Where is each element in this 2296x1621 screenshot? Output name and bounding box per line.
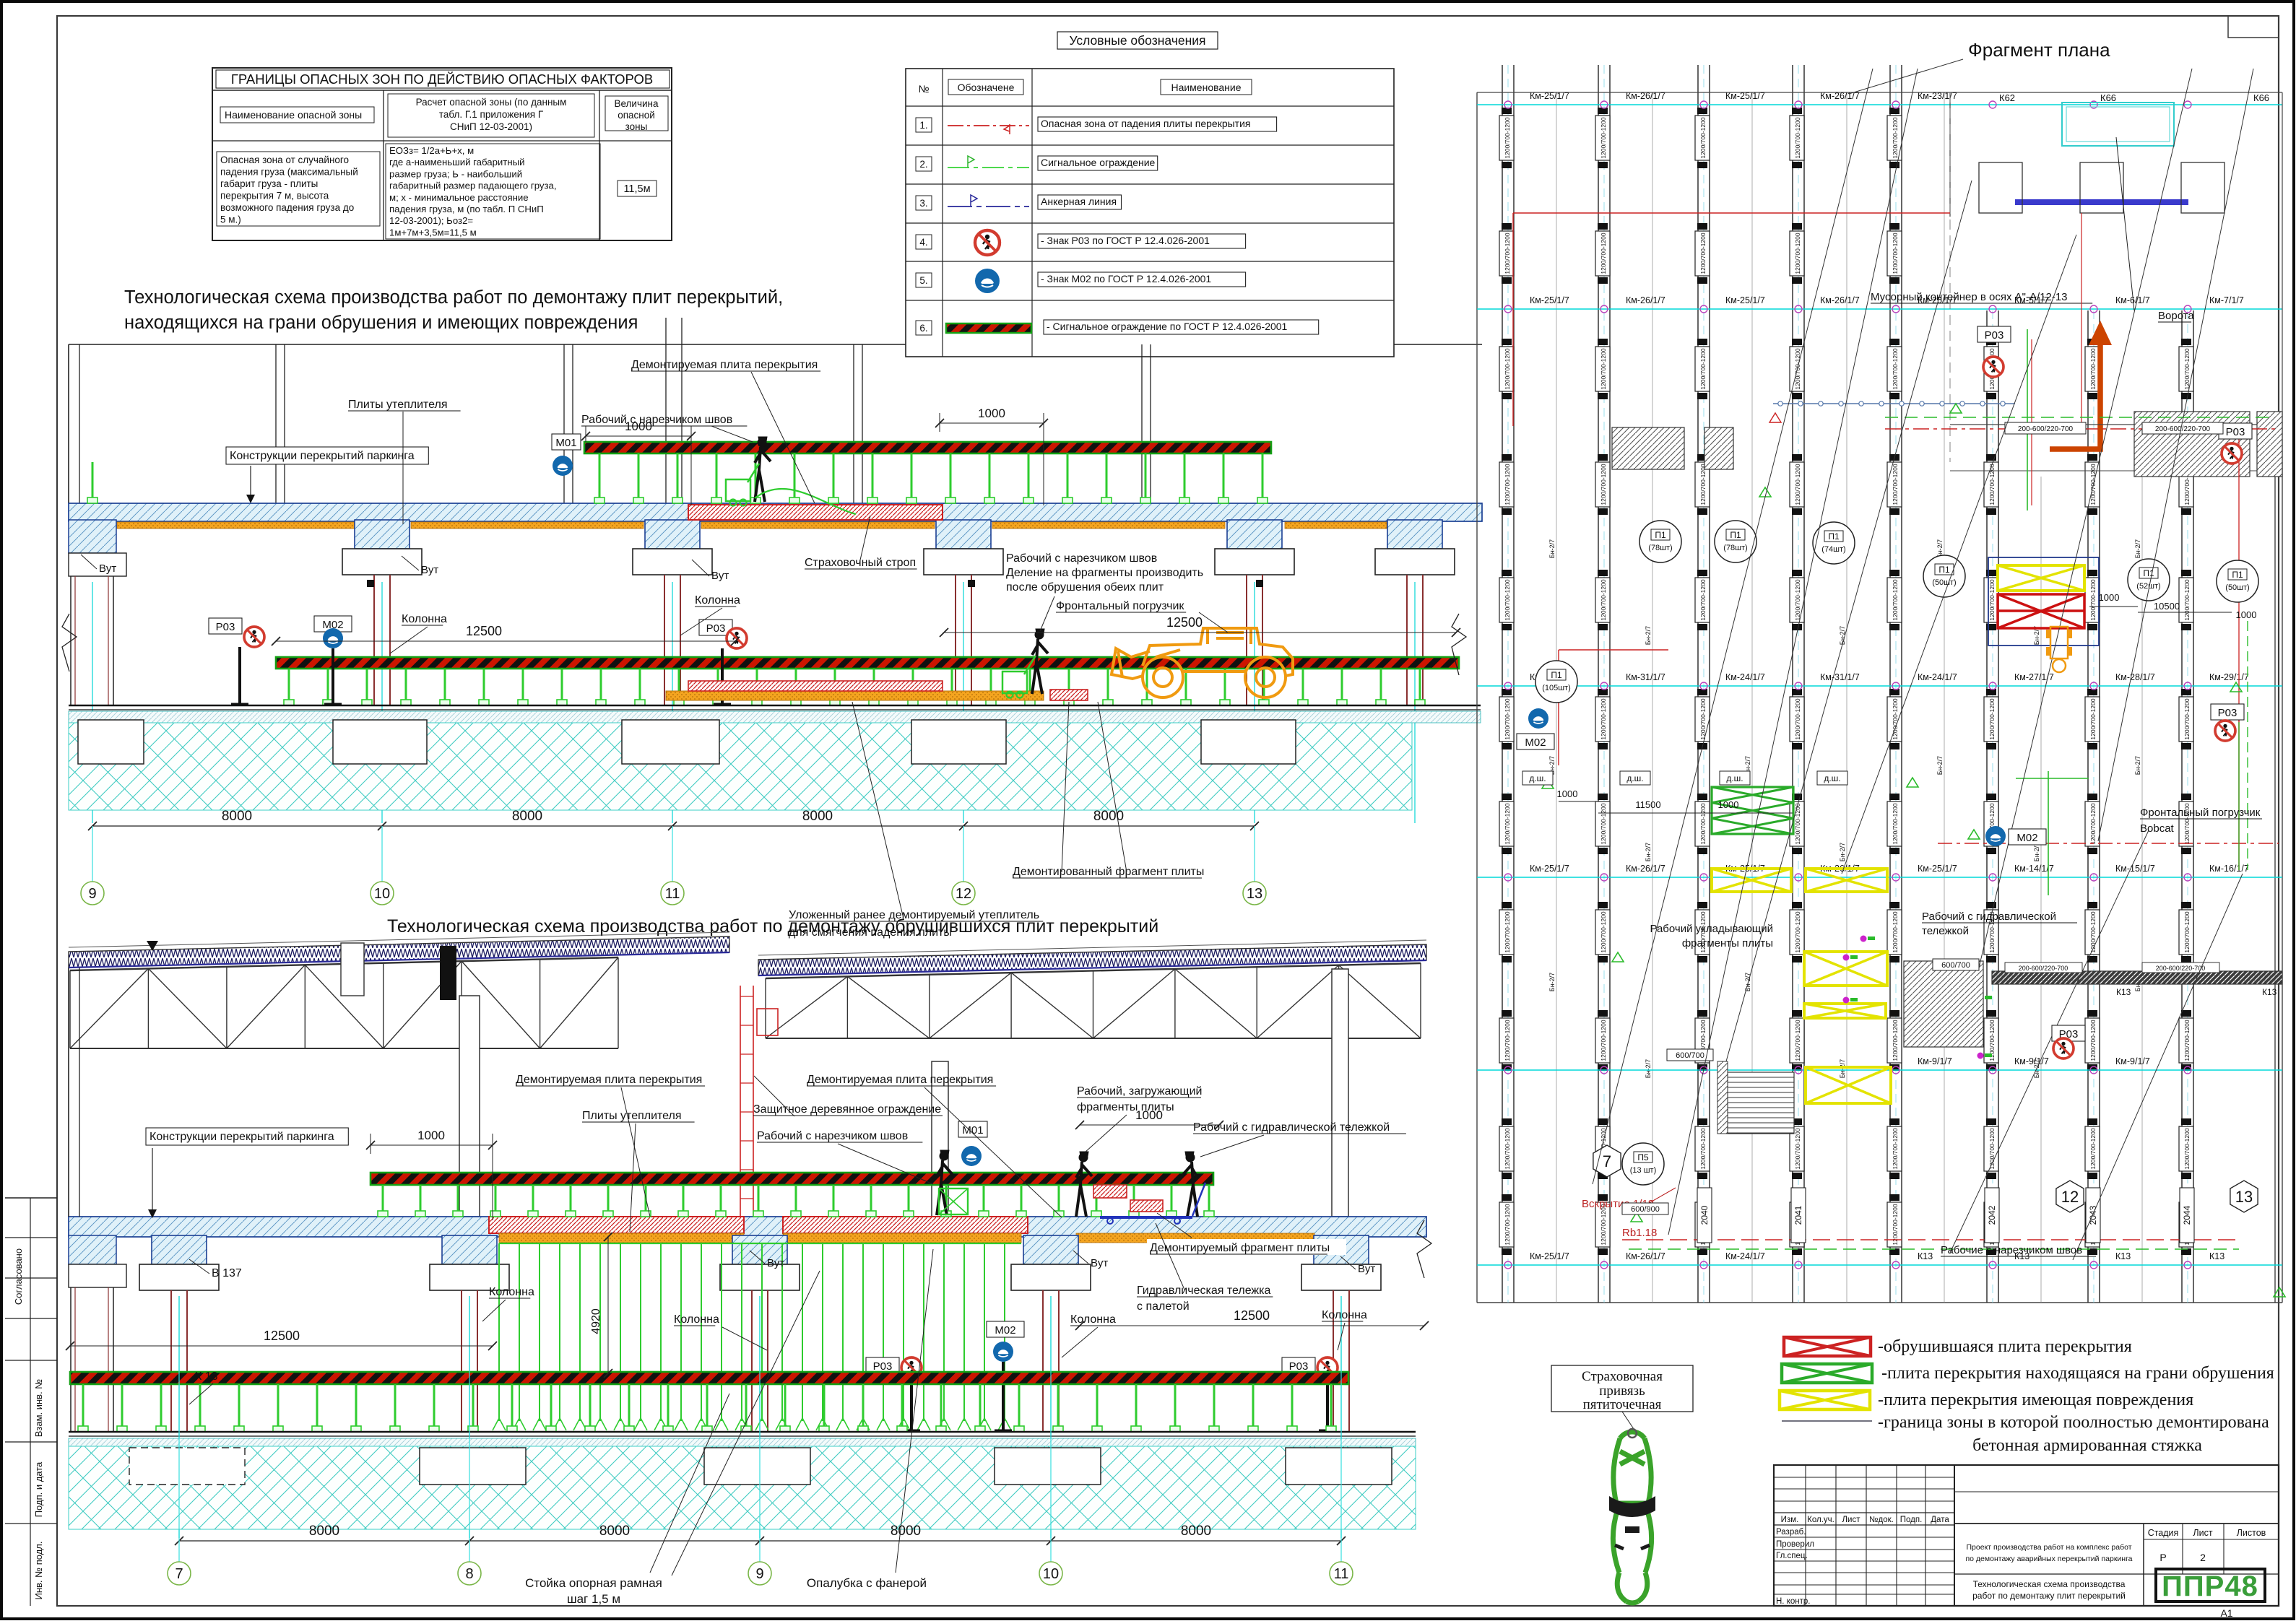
svg-text:6.: 6. xyxy=(919,323,927,334)
svg-text:12500: 12500 xyxy=(1234,1308,1270,1323)
svg-text:1200/700-1200: 1200/700-1200 xyxy=(1600,1020,1607,1061)
svg-text:Вут: Вут xyxy=(711,570,729,582)
svg-text:Наименование опасной зоны: Наименование опасной зоны xyxy=(225,109,362,121)
svg-text:8000: 8000 xyxy=(599,1524,630,1539)
svg-text:7: 7 xyxy=(1603,1152,1611,1170)
svg-text:8000: 8000 xyxy=(802,809,833,824)
svg-text:Вут: Вут xyxy=(767,1257,784,1269)
svg-text:1000: 1000 xyxy=(1557,788,1578,799)
svg-text:К13: К13 xyxy=(2209,1251,2224,1261)
svg-text:Рабочий укладывающий: Рабочий укладывающий xyxy=(1650,923,1773,935)
svg-text:Р03: Р03 xyxy=(2218,707,2237,719)
svg-text:Рабочий с нарезчиком швов: Рабочий с нарезчиком швов xyxy=(757,1130,908,1142)
svg-text:2.: 2. xyxy=(919,159,927,170)
svg-text:Км-25/1/7: Км-25/1/7 xyxy=(1530,295,1569,305)
svg-text:П5: П5 xyxy=(1637,1152,1649,1162)
svg-text:200-600/220-700: 200-600/220-700 xyxy=(2156,965,2206,972)
svg-text:5.: 5. xyxy=(919,275,927,286)
svg-text:1200/700-1200: 1200/700-1200 xyxy=(1794,911,1801,952)
svg-text:1000: 1000 xyxy=(2236,609,2257,620)
svg-text:13: 13 xyxy=(2235,1188,2253,1206)
svg-text:1200/700-1200: 1200/700-1200 xyxy=(1600,579,1607,620)
svg-text:1200/700-1200: 1200/700-1200 xyxy=(1600,464,1607,505)
svg-text:Наименование: Наименование xyxy=(1171,82,1241,93)
svg-text:шаг 1,5 м: шаг 1,5 м xyxy=(567,1592,620,1606)
svg-text:8: 8 xyxy=(465,1566,473,1582)
svg-text:Км-26/1/7: Км-26/1/7 xyxy=(1626,864,1665,874)
svg-text:1200/700-1200: 1200/700-1200 xyxy=(1892,117,1899,158)
svg-text:П1: П1 xyxy=(1938,565,1950,575)
svg-text:Анкерная линия: Анкерная линия xyxy=(1041,196,1117,207)
svg-text:1200/700-1200: 1200/700-1200 xyxy=(2089,698,2097,739)
svg-text:1200/700-1200: 1200/700-1200 xyxy=(1600,232,1607,274)
svg-text:Листов: Листов xyxy=(2237,1528,2266,1538)
svg-text:(74шт): (74шт) xyxy=(1821,545,1845,554)
svg-text:возможного падения груза до: возможного падения груза до xyxy=(220,202,354,213)
svg-text:1200/700-1200: 1200/700-1200 xyxy=(1988,698,1996,739)
svg-text:-плита перекрытия находящаяся: -плита перекрытия находящаяся на грани о… xyxy=(1881,1364,2274,1383)
svg-text:Км-24/1/7: Км-24/1/7 xyxy=(1725,672,1765,682)
svg-text:Дата: Дата xyxy=(1931,1516,1949,1524)
svg-text:8000: 8000 xyxy=(1093,809,1124,824)
svg-text:Км-9/1/7: Км-9/1/7 xyxy=(2014,1056,2049,1066)
svg-text:1200/700-1200: 1200/700-1200 xyxy=(1988,464,1996,505)
svg-text:Колонна: Колонна xyxy=(402,613,447,625)
svg-text:Демонтируемая плита перекрыт: Демонтируемая плита перекрытия xyxy=(807,1074,993,1086)
svg-text:Гидравлическая тележка: Гидравлическая тележка xyxy=(1137,1285,1270,1297)
svg-text:Фрагмент плана: Фрагмент плана xyxy=(1968,39,2110,61)
svg-text:11500: 11500 xyxy=(1635,799,1660,810)
svg-text:К62: К62 xyxy=(1999,92,2015,103)
svg-text:Км-29/1/7: Км-29/1/7 xyxy=(2209,672,2249,682)
svg-text:1200/700-1200: 1200/700-1200 xyxy=(1600,117,1607,158)
svg-text:м; х - минимальное расстоя: м; х - минимальное расстояние xyxy=(389,192,529,203)
svg-text:200-600/220-700: 200-600/220-700 xyxy=(2155,425,2211,433)
svg-text:Км-16/1/7: Км-16/1/7 xyxy=(2209,864,2249,874)
svg-text:1200/700-1200: 1200/700-1200 xyxy=(2183,911,2191,952)
svg-text:1000: 1000 xyxy=(2099,592,2120,603)
svg-text:опасной: опасной xyxy=(618,110,655,121)
svg-text:-граница зоны в которой поолно: -граница зоны в которой поолностью демон… xyxy=(1878,1413,2269,1432)
svg-text:Конструкции перекрытий парки: Конструкции перекрытий паркинга xyxy=(230,450,415,462)
svg-text:Рабочий с нарезчиком швов: Рабочий с нарезчиком швов xyxy=(581,414,732,426)
svg-text:Км-24/1/7: Км-24/1/7 xyxy=(1725,1251,1765,1261)
svg-text:1200/700-1200: 1200/700-1200 xyxy=(1699,579,1707,620)
svg-text:1200/700-1200: 1200/700-1200 xyxy=(1892,1128,1899,1169)
svg-text:1200/700-1200: 1200/700-1200 xyxy=(2089,1128,2097,1169)
svg-text:Колонна: Колонна xyxy=(695,594,740,607)
svg-text:по демонтажу аварийных перекры: по демонтажу аварийных перекрытий паркин… xyxy=(1965,1555,2132,1563)
svg-text:Км-15/1/7: Км-15/1/7 xyxy=(2115,864,2155,874)
svg-text:№: № xyxy=(918,83,929,95)
svg-text:М02: М02 xyxy=(1525,736,1546,749)
svg-text:Бн-2/7: Бн-2/7 xyxy=(1645,1059,1652,1078)
svg-text:(50шт): (50шт) xyxy=(2225,583,2249,592)
svg-text:Опалубка с фанерой: Опалубка с фанерой xyxy=(807,1576,927,1590)
svg-text:(13 шт): (13 шт) xyxy=(1630,1166,1656,1175)
svg-text:1200/700-1200: 1200/700-1200 xyxy=(1699,1128,1707,1169)
svg-text:Конструкции перекрытий парки: Конструкции перекрытий паркинга xyxy=(150,1131,334,1143)
svg-text:находящихся на грани обруше: находящихся на грани обрушения и имеющих… xyxy=(124,313,638,333)
svg-text:Км-7/1/7: Км-7/1/7 xyxy=(2209,295,2244,305)
svg-text:д.ш.: д.ш. xyxy=(1626,773,1643,783)
svg-text:после обрушения обеих плит: после обрушения обеих плит xyxy=(1006,581,1164,594)
svg-text:Кол.уч.: Кол.уч. xyxy=(1807,1516,1834,1524)
svg-text:1200/700-1200: 1200/700-1200 xyxy=(1504,117,1511,158)
svg-text:ГРАНИЦЫ ОПАСНЫХ ЗОН ПО ДЕЙ: ГРАНИЦЫ ОПАСНЫХ ЗОН ПО ДЕЙСТВИЮ ОПАСНЫХ … xyxy=(231,71,653,87)
svg-text:1200/700-1200: 1200/700-1200 xyxy=(1504,348,1511,389)
svg-text:1200/700-1200: 1200/700-1200 xyxy=(2089,348,2097,389)
svg-text:Плиты утеплителя: Плиты утеплителя xyxy=(348,399,448,411)
svg-text:К66: К66 xyxy=(2100,92,2116,103)
svg-text:1200/700-1200: 1200/700-1200 xyxy=(2183,1128,2191,1169)
svg-text:Сигнальное ограждение: Сигнальное ограждение xyxy=(1041,157,1156,168)
svg-text:Км-9/1/7: Км-9/1/7 xyxy=(1918,1056,1952,1066)
svg-text:габаритный размер падающего: габаритный размер падающего груза, xyxy=(389,181,557,191)
svg-text:200-600/220-700: 200-600/220-700 xyxy=(2018,425,2074,433)
svg-text:Бн-2/7: Бн-2/7 xyxy=(2134,756,2141,775)
svg-text:1200/700-1200: 1200/700-1200 xyxy=(1699,803,1707,844)
svg-text:Колонна: Колонна xyxy=(1322,1309,1367,1321)
svg-text:1200/700-1200: 1200/700-1200 xyxy=(1504,698,1511,739)
svg-text:Bobcat: Bobcat xyxy=(2140,822,2175,835)
svg-text:1200/700-1200: 1200/700-1200 xyxy=(1504,1128,1511,1169)
svg-text:для смягчения падения плиты: для смягчения падения плиты xyxy=(789,926,952,939)
svg-text:1200/700-1200: 1200/700-1200 xyxy=(1600,698,1607,739)
svg-text:1200/700-1200: 1200/700-1200 xyxy=(1892,1204,1899,1245)
svg-text:Стойка опорная рамная: Стойка опорная рамная xyxy=(525,1576,662,1590)
svg-text:Подп.: Подп. xyxy=(1900,1516,1923,1524)
svg-text:Км-26/1/7: Км-26/1/7 xyxy=(1626,1251,1665,1261)
svg-text:1м+7м+3,5м=11,5 м: 1м+7м+3,5м=11,5 м xyxy=(389,227,477,238)
svg-text:К 13: К 13 xyxy=(195,1370,218,1383)
svg-text:Мусорный контейнер в осях: Мусорный контейнер в осях А"-А/12-13 xyxy=(1871,291,2068,303)
svg-text:д.ш.: д.ш. xyxy=(1529,773,1546,783)
svg-text:1200/700-1200: 1200/700-1200 xyxy=(2183,348,2191,389)
svg-text:Лист: Лист xyxy=(1842,1516,1861,1524)
svg-text:1200/700-1200: 1200/700-1200 xyxy=(1892,1020,1899,1061)
svg-text:Изм.: Изм. xyxy=(1781,1516,1799,1524)
svg-text:600/700: 600/700 xyxy=(1941,961,1970,970)
svg-text:Бн-2/7: Бн-2/7 xyxy=(2134,539,2141,558)
svg-text:1200/700-1200: 1200/700-1200 xyxy=(1794,698,1801,739)
svg-text:Колонна: Колонна xyxy=(674,1313,719,1326)
svg-text:4920: 4920 xyxy=(590,1308,602,1334)
svg-text:1000: 1000 xyxy=(417,1129,445,1142)
svg-text:№док.: №док. xyxy=(1869,1516,1894,1524)
svg-text:Технологическая схема произв: Технологическая схема производства работ… xyxy=(124,287,783,308)
svg-text:Км-26/1/7: Км-26/1/7 xyxy=(1626,295,1665,305)
svg-text:Проект производства работ на к: Проект производства работ на комплекс ра… xyxy=(1966,1543,2131,1552)
svg-text:Км-9/1/7: Км-9/1/7 xyxy=(2115,1056,2150,1066)
svg-text:Вут: Вут xyxy=(1358,1263,1375,1275)
svg-text:Рабочий, загружающий: Рабочий, загружающий xyxy=(1077,1085,1202,1098)
svg-text:8000: 8000 xyxy=(512,809,542,824)
svg-text:1200/700-1200: 1200/700-1200 xyxy=(2183,698,2191,739)
svg-text:Р03: Р03 xyxy=(216,621,235,633)
svg-text:Бн-2/7: Бн-2/7 xyxy=(1645,843,1652,861)
svg-text:1000: 1000 xyxy=(1718,799,1739,810)
svg-text:Км-25/1/7: Км-25/1/7 xyxy=(1725,295,1765,305)
svg-text:Демонтируемый фрагмент плиты: Демонтируемый фрагмент плиты xyxy=(1150,1242,1330,1254)
svg-text:Демонтируемая плита перекрыт: Демонтируемая плита перекрытия xyxy=(516,1074,702,1086)
svg-text:ЕОЗз= 1/2а+Ь+х, м: ЕОЗз= 1/2а+Ь+х, м xyxy=(389,145,474,156)
svg-text:7: 7 xyxy=(175,1566,183,1582)
svg-text:фрагменты плиты: фрагменты плиты xyxy=(1682,937,1773,949)
svg-text:П1: П1 xyxy=(1551,670,1562,680)
svg-text:А1: А1 xyxy=(2220,1607,2232,1619)
svg-text:зоны: зоны xyxy=(625,121,648,132)
svg-text:К13: К13 xyxy=(2116,987,2131,997)
svg-text:Плиты утеплителя: Плиты утеплителя xyxy=(582,1110,682,1122)
svg-text:М01: М01 xyxy=(555,437,576,449)
svg-text:Км-25/1/7: Км-25/1/7 xyxy=(1530,1251,1569,1261)
svg-text:фрагменты плиты: фрагменты плиты xyxy=(1077,1101,1174,1113)
svg-text:Р: Р xyxy=(2159,1552,2166,1563)
svg-text:Обозначене: Обозначене xyxy=(958,82,1015,93)
svg-text:3.: 3. xyxy=(919,198,927,209)
svg-text:10500: 10500 xyxy=(2154,601,2180,612)
svg-text:Км-31/1/7: Км-31/1/7 xyxy=(1626,672,1665,682)
svg-text:Вут: Вут xyxy=(99,562,116,575)
svg-text:11: 11 xyxy=(665,886,680,902)
svg-text:Вут: Вут xyxy=(1091,1257,1108,1269)
svg-text:-плита перекрытия имеющая повр: -плита перекрытия имеющая повреждения xyxy=(1878,1391,2193,1409)
svg-text:-обрушившаяся плита перекрытия: -обрушившаяся плита перекрытия xyxy=(1878,1337,2132,1356)
svg-text:1200/700-1200: 1200/700-1200 xyxy=(1504,1204,1511,1245)
svg-text:1200/700-1200: 1200/700-1200 xyxy=(1699,348,1707,389)
svg-text:2042: 2042 xyxy=(1987,1205,1997,1225)
svg-text:1200/700-1200: 1200/700-1200 xyxy=(1892,348,1899,389)
svg-text:(105шт): (105шт) xyxy=(1542,684,1571,692)
svg-text:1200/700-1200: 1200/700-1200 xyxy=(1794,579,1801,620)
svg-text:перекрытия 7 м, высота: перекрытия 7 м, высота xyxy=(220,191,329,201)
svg-text:- Знак Р03 по ГОСТ Р 12.4: - Знак Р03 по ГОСТ Р 12.4.026-2001 xyxy=(1041,235,1210,246)
svg-text:1200/700-1200: 1200/700-1200 xyxy=(1504,911,1511,952)
svg-text:табл. Г.1 приложения Г: табл. Г.1 приложения Г xyxy=(439,109,544,120)
svg-text:4.: 4. xyxy=(919,237,927,248)
svg-text:К13: К13 xyxy=(2115,1251,2131,1261)
svg-text:Р03: Р03 xyxy=(706,622,726,635)
svg-text:Взам. инв. №: Взам. инв. № xyxy=(33,1379,44,1438)
svg-text:1000: 1000 xyxy=(625,420,652,433)
svg-text:Лист: Лист xyxy=(2193,1528,2212,1538)
svg-text:пятиточечная: пятиточечная xyxy=(1583,1397,1662,1412)
svg-text:1200/700-1200: 1200/700-1200 xyxy=(1892,464,1899,505)
svg-text:Демонтируемая плита перекрыт: Демонтируемая плита перекрытия xyxy=(631,359,818,371)
svg-text:1200/700-1200: 1200/700-1200 xyxy=(1699,232,1707,274)
svg-text:Колонна: Колонна xyxy=(489,1286,534,1298)
svg-text:8000: 8000 xyxy=(309,1524,339,1539)
svg-text:Бн-2/7: Бн-2/7 xyxy=(1839,843,1846,861)
svg-text:М02: М02 xyxy=(2016,832,2037,844)
svg-text:падения груза, м (по табл.: падения груза, м (по табл. П СНиП xyxy=(389,204,544,214)
svg-text:Фронтальный погрузчик: Фронтальный погрузчик xyxy=(2140,807,2261,819)
svg-text:8000: 8000 xyxy=(222,809,252,824)
svg-text:1200/700-1200: 1200/700-1200 xyxy=(2089,464,2097,505)
svg-text:9: 9 xyxy=(88,886,96,902)
svg-text:Опасная зона от падения пл: Опасная зона от падения плиты перекрытия xyxy=(1041,118,1251,129)
svg-text:Инв. № подл.: Инв. № подл. xyxy=(33,1542,44,1600)
svg-text:1200/700-1200: 1200/700-1200 xyxy=(1600,911,1607,952)
svg-text:Фронтальный погрузчик: Фронтальный погрузчик xyxy=(1056,600,1184,612)
svg-text:2044: 2044 xyxy=(2182,1205,2192,1225)
svg-text:(50шт): (50шт) xyxy=(1932,578,1956,587)
svg-text:12500: 12500 xyxy=(264,1329,300,1343)
svg-text:(78шт): (78шт) xyxy=(1648,544,1672,552)
svg-text:Км-26/1/7: Км-26/1/7 xyxy=(1820,295,1860,305)
svg-text:1200/700-1200: 1200/700-1200 xyxy=(1504,579,1511,620)
svg-text:д.ш.: д.ш. xyxy=(1726,773,1743,783)
svg-text:1200/700-1200: 1200/700-1200 xyxy=(1794,232,1801,274)
svg-text:1200/700-1200: 1200/700-1200 xyxy=(1892,232,1899,274)
svg-text:Разраб.: Разраб. xyxy=(1776,1528,1806,1537)
svg-text:П1: П1 xyxy=(2232,570,2243,580)
svg-text:К13: К13 xyxy=(2262,987,2277,997)
svg-text:1200/700-1200: 1200/700-1200 xyxy=(1794,803,1801,844)
svg-text:Подп. и дата: Подп. и дата xyxy=(33,1461,44,1517)
svg-text:Бн-2/7: Бн-2/7 xyxy=(2033,843,2040,861)
svg-text:В 137: В 137 xyxy=(212,1267,242,1279)
svg-text:Технологическая схема произв: Технологическая схема производства xyxy=(1973,1579,2126,1589)
svg-text:10: 10 xyxy=(1043,1566,1059,1582)
svg-text:1200/700-1200: 1200/700-1200 xyxy=(1504,803,1511,844)
svg-text:1200/700-1200: 1200/700-1200 xyxy=(1699,464,1707,505)
svg-text:- Сигнальное ограждение по: - Сигнальное ограждение по ГОСТ Р 12.4.0… xyxy=(1047,321,1288,332)
svg-text:Уложенный ранее демонтируемы: Уложенный ранее демонтируемый утеплитель xyxy=(789,909,1039,921)
svg-text:8000: 8000 xyxy=(1181,1524,1211,1539)
svg-text:2041: 2041 xyxy=(1793,1205,1803,1225)
svg-text:Деление на фрагменты произв: Деление на фрагменты производить xyxy=(1006,567,1203,579)
svg-text:(78шт): (78шт) xyxy=(1723,544,1747,552)
svg-text:Колонна: Колонна xyxy=(1070,1313,1116,1326)
svg-text:Защитное деревянное огражден: Защитное деревянное ограждение xyxy=(753,1103,941,1116)
svg-text:Р03: Р03 xyxy=(873,1360,893,1373)
svg-text:1200/700-1200: 1200/700-1200 xyxy=(2089,803,2097,844)
svg-text:1000: 1000 xyxy=(978,407,1005,420)
svg-text:Условные обозначения: Условные обозначения xyxy=(1069,33,1205,48)
svg-text:1200/700-1200: 1200/700-1200 xyxy=(1504,1020,1511,1061)
svg-text:1200/700-1200: 1200/700-1200 xyxy=(2089,1020,2097,1061)
svg-text:Демонтированный фрагмент пли: Демонтированный фрагмент плиты xyxy=(1013,866,1204,878)
svg-text:1.: 1. xyxy=(919,120,927,131)
svg-text:Бн-2/7: Бн-2/7 xyxy=(1936,756,1944,775)
svg-text:привязь: привязь xyxy=(1599,1383,1645,1399)
svg-text:Р03: Р03 xyxy=(1985,329,2004,342)
svg-text:Величина: Величина xyxy=(614,98,659,109)
svg-text:тележкой: тележкой xyxy=(1922,925,1969,937)
svg-text:Страховочная: Страховочная xyxy=(1582,1369,1663,1384)
svg-text:- Знак М02 по ГОСТ Р 12.4: - Знак М02 по ГОСТ Р 12.4.026-2001 xyxy=(1041,273,1211,284)
svg-text:1200/700-1200: 1200/700-1200 xyxy=(1504,464,1511,505)
svg-text:Рабочий с гидравлической: Рабочий с гидравлической xyxy=(1922,911,2056,923)
svg-text:Рабочий с гидравлической те: Рабочий с гидравлической тележкой xyxy=(1193,1121,1390,1134)
svg-text:1200/700-1200: 1200/700-1200 xyxy=(1794,464,1801,505)
svg-text:Р03: Р03 xyxy=(1289,1360,1309,1373)
svg-text:2: 2 xyxy=(2200,1552,2206,1563)
svg-text:габарит груза - плиты: габарит груза - плиты xyxy=(220,178,318,189)
svg-text:К13: К13 xyxy=(1918,1251,1933,1261)
svg-text:Км-24/1/7: Км-24/1/7 xyxy=(1918,672,1957,682)
svg-text:Rb1.18: Rb1.18 xyxy=(1622,1227,1657,1239)
svg-text:12: 12 xyxy=(956,886,971,902)
svg-text:Расчет опасной зоны (по да: Расчет опасной зоны (по данным xyxy=(416,97,567,108)
svg-text:Бн-2/7: Бн-2/7 xyxy=(1548,973,1556,991)
svg-text:10: 10 xyxy=(374,886,390,902)
svg-text:бетонная армированная стяжка: бетонная армированная стяжка xyxy=(1972,1436,2202,1455)
svg-text:1200/700-1200: 1200/700-1200 xyxy=(1892,698,1899,739)
svg-text:12500: 12500 xyxy=(466,624,502,638)
svg-text:д.ш.: д.ш. xyxy=(1824,773,1840,783)
svg-text:1200/700-1200: 1200/700-1200 xyxy=(2183,1020,2191,1061)
svg-text:ППР48: ППР48 xyxy=(2162,1570,2258,1602)
svg-text:Км-25/1/7: Км-25/1/7 xyxy=(1530,864,1569,874)
svg-text:1200/700-1200: 1200/700-1200 xyxy=(1600,803,1607,844)
svg-text:П1: П1 xyxy=(1730,530,1741,540)
svg-text:1200/700-1200: 1200/700-1200 xyxy=(2183,579,2191,620)
svg-text:падения груза (максимальный: падения груза (максимальный xyxy=(220,167,358,178)
svg-text:1200/700-1200: 1200/700-1200 xyxy=(1794,1128,1801,1169)
svg-text:12: 12 xyxy=(2061,1188,2079,1206)
svg-text:Рабочие с нарезчиком швов: Рабочие с нарезчиком швов xyxy=(1941,1244,2082,1256)
svg-text:Гл.спец.: Гл.спец. xyxy=(1776,1552,1808,1560)
svg-text:работ по демонтажу плит пе: работ по демонтажу плит перекрытий xyxy=(1972,1591,2126,1601)
svg-text:Согласовано: Согласовано xyxy=(13,1248,24,1305)
svg-text:1200/700-1200: 1200/700-1200 xyxy=(1794,1020,1801,1061)
svg-text:Бн-2/7: Бн-2/7 xyxy=(1645,626,1652,645)
svg-text:Рабочий с нарезчиком швов: Рабочий с нарезчиком швов xyxy=(1006,552,1157,565)
svg-text:1200/700-1200: 1200/700-1200 xyxy=(1988,579,1996,620)
svg-text:2040: 2040 xyxy=(1699,1205,1710,1225)
svg-text:600/700: 600/700 xyxy=(1676,1051,1704,1060)
svg-text:Бн-2/7: Бн-2/7 xyxy=(1548,539,1556,558)
svg-text:1200/700-1200: 1200/700-1200 xyxy=(1892,911,1899,952)
svg-text:Ворота: Ворота xyxy=(2158,310,2194,322)
svg-text:П1: П1 xyxy=(1828,531,1840,542)
svg-text:1200/700-1200: 1200/700-1200 xyxy=(1892,803,1899,844)
svg-text:9: 9 xyxy=(755,1566,763,1582)
svg-text:200-600/220-700: 200-600/220-700 xyxy=(2019,965,2068,972)
svg-text:8000: 8000 xyxy=(891,1524,921,1539)
svg-text:600/900: 600/900 xyxy=(1631,1205,1660,1214)
svg-text:где а-наименьший габаритный: где а-наименьший габаритный xyxy=(389,157,524,168)
svg-text:К66: К66 xyxy=(2253,92,2269,103)
svg-text:размер груза; Ь - наибольш: размер груза; Ь - наибольший xyxy=(389,168,522,179)
svg-text:12-03-2001); Ьоз2=: 12-03-2001); Ьоз2= xyxy=(389,215,473,226)
svg-text:с палетой: с палетой xyxy=(1137,1300,1190,1313)
svg-text:Км-31/1/7: Км-31/1/7 xyxy=(1820,672,1860,682)
svg-text:Н. контр.: Н. контр. xyxy=(1776,1597,1810,1606)
svg-text:1200/700-1200: 1200/700-1200 xyxy=(2089,911,2097,952)
svg-text:1200/700-1200: 1200/700-1200 xyxy=(1600,348,1607,389)
svg-text:11: 11 xyxy=(1334,1566,1349,1582)
svg-text:Вут: Вут xyxy=(421,564,438,576)
svg-text:Стадия: Стадия xyxy=(2148,1528,2179,1538)
svg-text:13: 13 xyxy=(1247,886,1262,902)
svg-text:5 м.): 5 м.) xyxy=(220,214,241,225)
svg-text:СНиП 12-03-2001): СНиП 12-03-2001) xyxy=(450,121,532,132)
svg-text:1200/700-1200: 1200/700-1200 xyxy=(1504,232,1511,274)
svg-text:Р03: Р03 xyxy=(2226,426,2245,438)
svg-text:11,5м: 11,5м xyxy=(623,183,650,195)
svg-text:1200/700-1200: 1200/700-1200 xyxy=(1794,117,1801,158)
svg-text:Технологическая схема произв: Технологическая схема производства работ… xyxy=(387,916,1158,936)
svg-text:Опасная зона от случайного: Опасная зона от случайного xyxy=(220,155,349,165)
svg-text:М02: М02 xyxy=(995,1324,1015,1337)
svg-text:1200/700-1200: 1200/700-1200 xyxy=(1699,117,1707,158)
svg-text:1200/700-1200: 1200/700-1200 xyxy=(1892,579,1899,620)
svg-text:П1: П1 xyxy=(1655,530,1666,540)
